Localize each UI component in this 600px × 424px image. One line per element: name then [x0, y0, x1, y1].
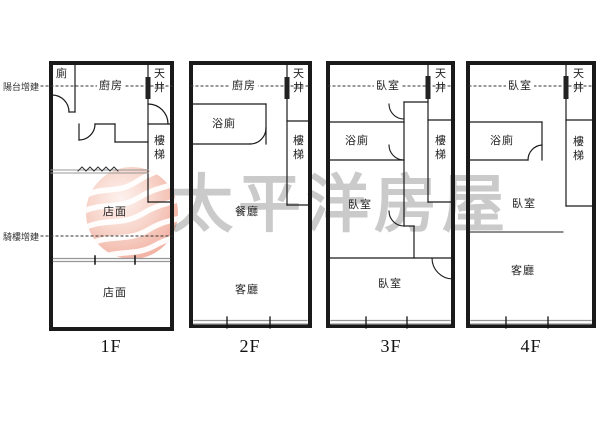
room-label-lightwell-3f: 天井	[434, 67, 447, 95]
room-label-lightwell-1f: 天井	[153, 67, 166, 95]
window-icon	[426, 76, 431, 99]
room-label-bed-mid-3f: 臥室	[348, 199, 372, 211]
room-label-kitchen-2f: 廚房	[230, 80, 258, 92]
room-label-store-upper-1f: 店面	[103, 206, 127, 218]
room-label-bed-bottom-3f: 臥室	[378, 278, 402, 290]
window-icon	[285, 77, 290, 99]
room-label-bed-top-4f: 臥室	[506, 80, 534, 92]
room-label-lightwell-4f: 天井	[572, 67, 585, 95]
floorplan-lines	[0, 0, 600, 424]
floor-label-4f: 4F	[511, 336, 551, 357]
room-label-kitchen-1f: 廚房	[97, 80, 125, 92]
window-icon	[146, 77, 151, 99]
balcony-addition-label: 陽台增建	[3, 80, 39, 93]
room-label-bath-2f: 浴廁	[212, 118, 236, 130]
room-label-bath-4f: 浴廁	[490, 135, 514, 147]
floorplan-page: 太平洋房屋	[0, 0, 600, 424]
room-label-bed-mid-4f: 臥室	[512, 198, 536, 210]
room-label-living-4f: 客廳	[511, 265, 535, 277]
room-label-stairs-4f: 樓梯	[572, 135, 585, 163]
room-label-store-lower-1f: 店面	[103, 287, 127, 299]
room-label-living-2f: 客廳	[235, 284, 259, 296]
floor-label-1f: 1F	[91, 336, 131, 357]
margin-leader-lines	[31, 86, 51, 236]
room-label-bath-3f: 浴廁	[345, 135, 369, 147]
floor-label-2f: 2F	[230, 336, 270, 357]
room-label-stairs-2f: 樓梯	[292, 134, 305, 162]
floorplan-4f	[468, 63, 594, 328]
room-label-bed-top-3f: 臥室	[374, 80, 402, 92]
room-label-stairs-3f: 樓梯	[434, 134, 447, 162]
room-label-stairs-1f: 樓梯	[153, 134, 166, 162]
room-label-dining-2f: 餐廳	[235, 206, 259, 218]
room-label-toilet-1f: 廁	[56, 68, 68, 80]
window-icon	[564, 76, 569, 99]
room-label-lightwell-2f: 天井	[292, 67, 305, 95]
floor-label-3f: 3F	[371, 336, 411, 357]
arcade-addition-label: 騎樓增建	[3, 230, 39, 243]
